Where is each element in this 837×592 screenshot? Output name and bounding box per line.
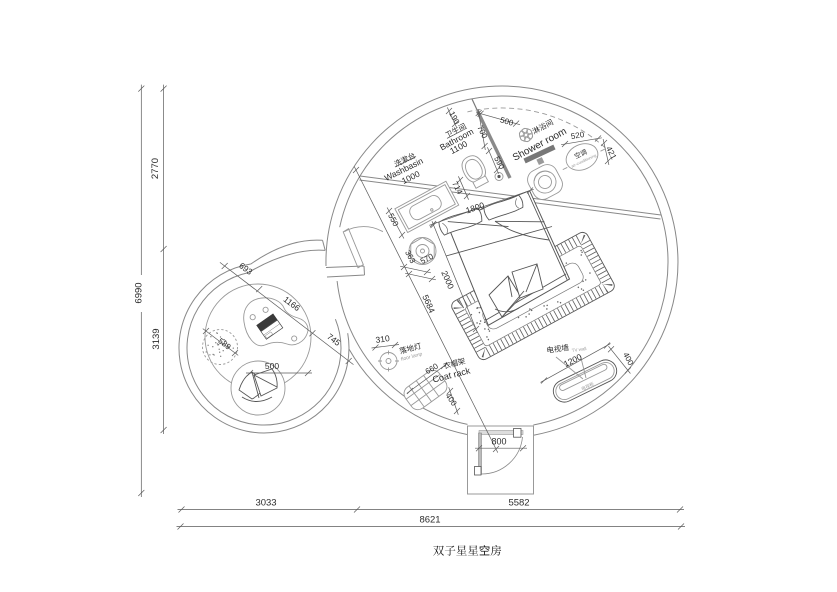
- svg-text:3033: 3033: [255, 498, 276, 509]
- svg-text:800: 800: [491, 437, 506, 447]
- svg-text:310: 310: [375, 333, 391, 345]
- svg-text:2770: 2770: [150, 158, 161, 179]
- svg-text:6990: 6990: [133, 282, 144, 303]
- svg-text:500: 500: [265, 361, 279, 371]
- svg-text:8621: 8621: [419, 515, 440, 526]
- svg-text:3139: 3139: [151, 328, 162, 349]
- svg-text:5582: 5582: [508, 498, 529, 509]
